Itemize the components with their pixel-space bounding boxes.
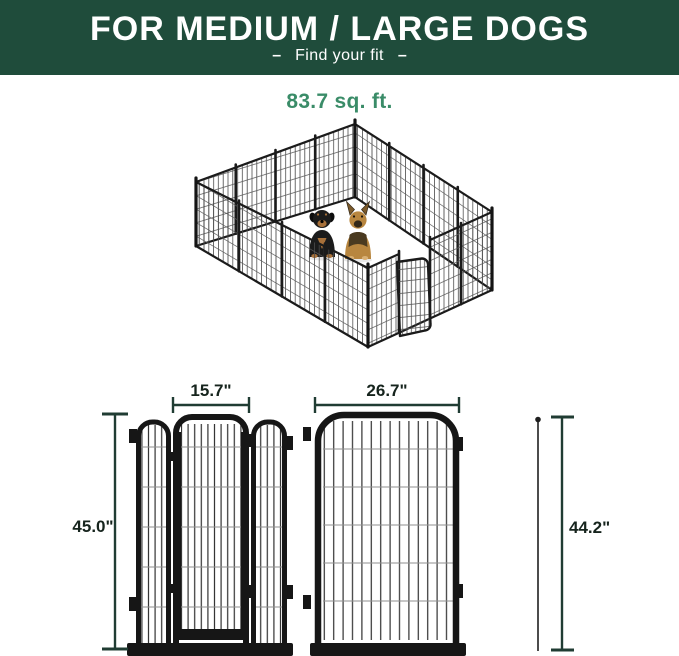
panel-width-label: 26.7": [366, 381, 407, 400]
product-infographic: FOR MEDIUM / LARGE DOGS – Find your fit …: [0, 0, 679, 656]
pen-illustration: [196, 120, 492, 347]
regular-panel-diagram: 26.7" 44.2": [303, 381, 610, 656]
pen-open-door: [397, 258, 431, 336]
rod-height-label: 44.2": [569, 518, 610, 537]
door-bottom-bar: [173, 629, 246, 640]
pen-and-dimension-graphics: 15.7" 45.0" 26.7: [0, 0, 679, 656]
door-width-label: 15.7": [190, 381, 231, 400]
door-panel-base-bar: [127, 643, 293, 656]
door-panel-diagram: 15.7" 45.0": [72, 381, 293, 656]
connecting-rod: [535, 417, 541, 651]
panel-base-bar: [310, 643, 466, 656]
rod-head: [535, 417, 541, 423]
door-height-label: 45.0": [72, 517, 113, 536]
